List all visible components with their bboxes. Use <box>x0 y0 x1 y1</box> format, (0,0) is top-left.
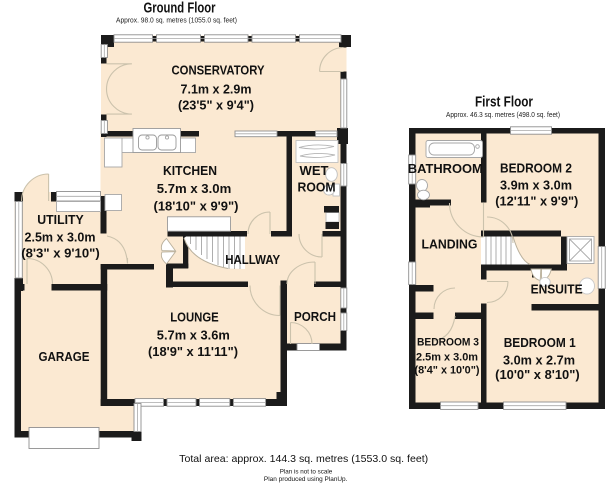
svg-text:WET: WET <box>300 163 329 178</box>
svg-text:5.7m x 3.6m: 5.7m x 3.6m <box>157 327 230 342</box>
svg-text:Ground Floor: Ground Floor <box>144 1 216 17</box>
svg-text:(18'10" x 9'9"): (18'10" x 9'9") <box>154 198 239 213</box>
svg-text:Approx. 98.0 sq. metres (1055.: Approx. 98.0 sq. metres (1055.0 sq. feet… <box>116 16 237 25</box>
svg-text:Approx. 46.3 sq. metres (498.0: Approx. 46.3 sq. metres (498.0 sq. feet) <box>446 110 560 119</box>
svg-text:HALLWAY: HALLWAY <box>225 252 280 267</box>
svg-text:3.9m x 3.0m: 3.9m x 3.0m <box>500 177 572 192</box>
svg-text:Plan is not to scale: Plan is not to scale <box>280 469 333 475</box>
svg-text:2.5m x 3.0m: 2.5m x 3.0m <box>416 352 478 364</box>
svg-text:Total area: approx. 144.3 sq.: Total area: approx. 144.3 sq. metres (15… <box>179 453 428 465</box>
svg-text:LOUNGE: LOUNGE <box>170 309 219 324</box>
svg-text:First Floor: First Floor <box>475 95 533 111</box>
svg-text:(12'11" x 9'9"): (12'11" x 9'9") <box>495 194 578 209</box>
svg-text:3.0m x 2.7m: 3.0m x 2.7m <box>503 352 575 367</box>
svg-text:7.1m x 2.9m: 7.1m x 2.9m <box>181 82 252 97</box>
svg-text:(18'9" x 11'11"): (18'9" x 11'11") <box>148 344 238 359</box>
svg-text:CONSERVATORY: CONSERVATORY <box>172 62 265 77</box>
svg-text:BEDROOM 2: BEDROOM 2 <box>500 160 572 175</box>
svg-text:Plan produced using PlanUp.: Plan produced using PlanUp. <box>264 477 348 483</box>
svg-text:KITCHEN: KITCHEN <box>163 163 217 178</box>
svg-text:(8'3" x 9'10"): (8'3" x 9'10") <box>21 245 100 260</box>
svg-text:UTILITY: UTILITY <box>37 212 84 227</box>
svg-text:ENSUITE: ENSUITE <box>531 282 583 297</box>
svg-text:BEDROOM 1: BEDROOM 1 <box>504 335 576 350</box>
svg-text:(8'4" x 10'0"): (8'4" x 10'0") <box>415 365 480 377</box>
svg-text:5.7m x 3.0m: 5.7m x 3.0m <box>157 181 232 196</box>
svg-text:PORCH: PORCH <box>294 309 336 324</box>
svg-text:ROOM: ROOM <box>298 179 336 194</box>
svg-text:GARAGE: GARAGE <box>39 349 90 364</box>
svg-text:(23'5" x 9'4"): (23'5" x 9'4") <box>178 97 254 112</box>
svg-text:BEDROOM 3: BEDROOM 3 <box>417 337 479 349</box>
svg-text:2.5m x 3.0m: 2.5m x 3.0m <box>25 229 96 244</box>
svg-text:(10'0" x 8'10"): (10'0" x 8'10") <box>495 367 580 382</box>
svg-text:BATHROOM: BATHROOM <box>408 161 483 176</box>
svg-text:LANDING: LANDING <box>422 237 478 252</box>
